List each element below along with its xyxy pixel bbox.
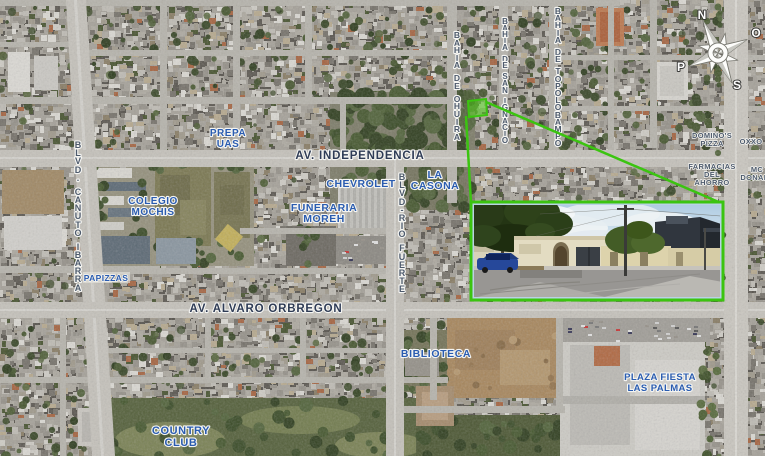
svg-text:BAHIADETOPOLOBAMPO: BAHIADETOPOLOBAMPO — [554, 6, 561, 148]
svg-text:BLVD.CANUTOIBARRA: BLVD.CANUTOIBARRA — [74, 140, 81, 293]
svg-text:BIBLIOTECA: BIBLIOTECA — [401, 348, 471, 360]
svg-text:LAS PALMAS: LAS PALMAS — [627, 383, 692, 394]
svg-text:PAPIZZAS: PAPIZZAS — [84, 273, 129, 283]
svg-text:P: P — [677, 60, 685, 74]
svg-text:BLVD-RIOFUERTE: BLVD-RIOFUERTE — [398, 172, 405, 294]
svg-text:PREPA: PREPA — [210, 128, 246, 139]
svg-text:PIZZA: PIZZA — [700, 139, 723, 148]
svg-text:OXXO: OXXO — [740, 137, 763, 146]
svg-text:COLEGIO: COLEGIO — [128, 196, 178, 207]
svg-text:AHORRO: AHORRO — [694, 178, 729, 187]
svg-text:DONALDS: DONALDS — [740, 173, 765, 182]
svg-text:UAS: UAS — [217, 139, 240, 150]
svg-text:CASONA: CASONA — [411, 180, 460, 192]
svg-text:MOREH: MOREH — [303, 213, 345, 225]
svg-text:AV. ALVARO ORBREGON: AV. ALVARO ORBREGON — [190, 303, 343, 315]
svg-text:PLAZA FIESTA: PLAZA FIESTA — [624, 372, 696, 383]
svg-text:BAHIADESANIGNACIO: BAHIADESANIGNACIO — [502, 17, 508, 145]
svg-text:BAHIADEOHUIRA: BAHIADEOHUIRA — [454, 30, 461, 142]
svg-text:CLUB: CLUB — [165, 437, 198, 449]
svg-text:COUNTRY: COUNTRY — [152, 425, 210, 437]
svg-text:S: S — [733, 78, 741, 92]
svg-text:AV. INDEPENDENCIA: AV. INDEPENDENCIA — [295, 150, 424, 162]
svg-text:CHEVROLET: CHEVROLET — [326, 178, 395, 190]
svg-text:O: O — [751, 26, 760, 40]
svg-text:N: N — [698, 8, 707, 22]
svg-text:MOCHIS: MOCHIS — [132, 207, 175, 218]
